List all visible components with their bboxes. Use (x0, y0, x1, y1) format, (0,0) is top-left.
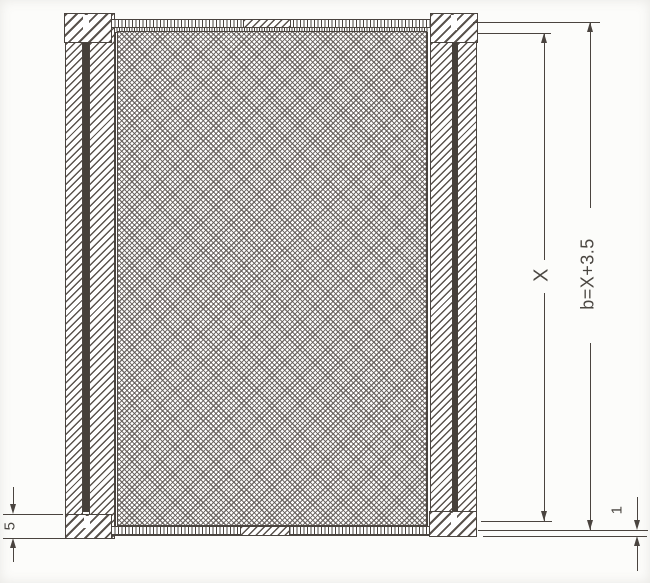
arrowhead-x-bottom (541, 511, 547, 521)
extension-line-b-bottom (478, 530, 648, 531)
dimension-line-b-lower (590, 343, 591, 530)
mesh-panel (117, 31, 427, 526)
technical-drawing-canvas: X b=X+3.5 5 1 (0, 0, 650, 583)
extension-line-5-top (3, 514, 63, 515)
arrowhead-5-lower (10, 538, 16, 548)
left-spline-bar (83, 43, 89, 512)
corner-slit-top-right (451, 15, 457, 30)
left-stile-outer (65, 13, 83, 539)
extension-line-x-bottom (481, 521, 552, 522)
extension-line-x-top (477, 33, 551, 34)
arrowhead-1-upper (634, 520, 640, 530)
dimension-label-1: 1 (609, 506, 626, 515)
dimension-line-x-lower (544, 293, 545, 521)
dimension-tail-1-lower (637, 545, 638, 571)
arrowhead-b-top (587, 22, 593, 32)
corner-slit-bottom-right (451, 513, 457, 525)
left-stile-inner (89, 13, 115, 539)
arrowhead-x-top (541, 33, 547, 43)
extension-line-b-top (473, 22, 600, 23)
top-rail-splice (243, 19, 291, 28)
bottom-rail-splice (240, 526, 290, 536)
arrowhead-5-upper (10, 504, 16, 514)
corner-slit-bottom-left (84, 516, 90, 528)
dimension-label-5: 5 (2, 522, 19, 531)
dimension-tail-1-upper (637, 497, 638, 521)
right-stile-outer (457, 13, 477, 537)
arrowhead-b-bottom (587, 520, 593, 530)
extension-line-1-bottom (483, 536, 647, 537)
right-stile-inner (430, 13, 453, 537)
right-spline-bar (452, 43, 458, 511)
right-mesh-channel (427, 31, 431, 526)
dimension-label-b: b=X+3.5 (578, 238, 599, 310)
corner-slit-top-left (83, 15, 89, 30)
dimension-label-x: X (531, 268, 554, 282)
dimension-line-x-upper (544, 33, 545, 260)
dimension-line-b-upper (590, 22, 591, 208)
dimension-tail-5-lower (13, 547, 14, 562)
arrowhead-1-lower (634, 536, 640, 546)
